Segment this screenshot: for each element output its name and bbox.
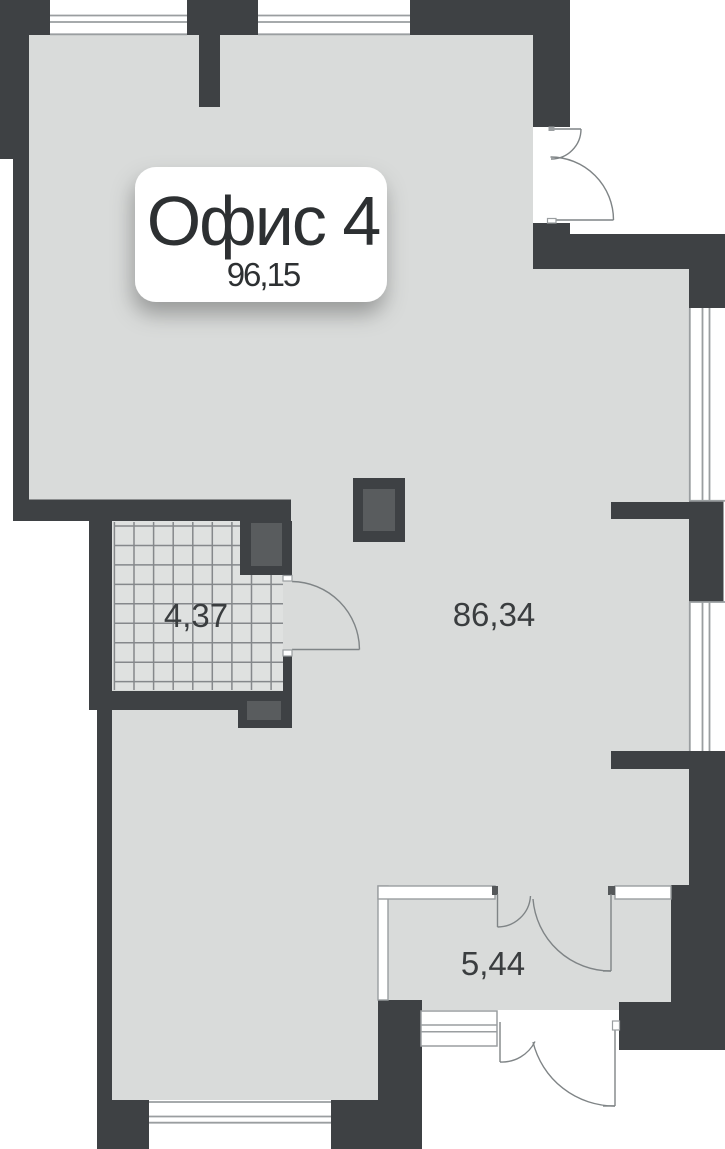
svg-text:4,37: 4,37 [164, 597, 228, 634]
svg-text:5,44: 5,44 [461, 945, 525, 982]
svg-text:86,34: 86,34 [453, 596, 536, 633]
svg-text:Офис 4: Офис 4 [147, 182, 380, 260]
svg-text:96,15: 96,15 [227, 256, 300, 293]
